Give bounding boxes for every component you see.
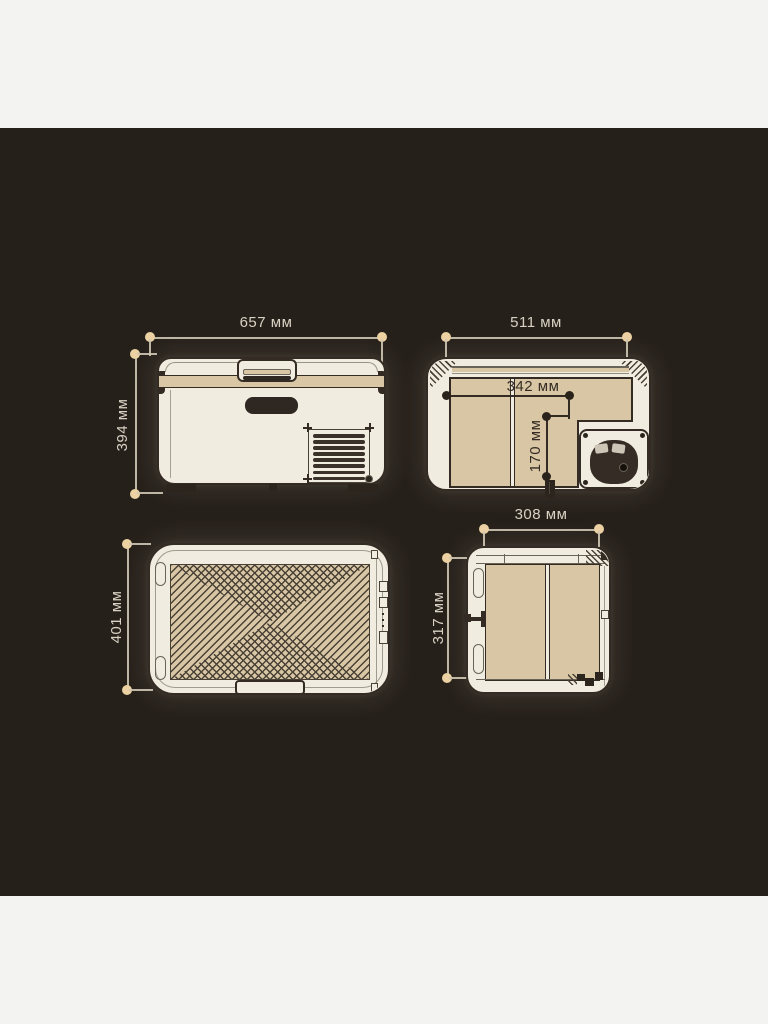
top-margin bbox=[0, 0, 768, 128]
dim-line-side-height bbox=[447, 558, 449, 678]
bottom-margin bbox=[0, 896, 768, 1024]
drawing-canvas: 657 мм 394 мм bbox=[0, 128, 768, 896]
bracket bbox=[577, 674, 585, 681]
dim-line-side-width bbox=[484, 529, 599, 531]
lid-tick bbox=[504, 554, 505, 564]
dim-extension bbox=[449, 557, 467, 559]
side-view: 308 мм 317 мм bbox=[0, 128, 768, 896]
dim-extension bbox=[598, 531, 600, 547]
bracket-hatch bbox=[568, 674, 577, 685]
corner-guard bbox=[473, 568, 484, 598]
dim-label-side-height: 317 мм bbox=[430, 568, 446, 668]
side-panel bbox=[485, 564, 600, 681]
latch-bar bbox=[481, 611, 486, 627]
side-body bbox=[466, 546, 611, 694]
bracket bbox=[585, 678, 594, 686]
hinge-block bbox=[601, 551, 609, 560]
dim-extension bbox=[449, 677, 467, 679]
lid-tick bbox=[578, 554, 579, 564]
dim-label-side-width: 308 мм bbox=[491, 506, 591, 522]
hinge-rim-line bbox=[604, 566, 605, 688]
corner-guard bbox=[473, 644, 484, 674]
panel-divider bbox=[545, 565, 550, 680]
hinge bbox=[601, 610, 609, 619]
bracket bbox=[595, 672, 603, 680]
side-surface bbox=[468, 548, 609, 692]
